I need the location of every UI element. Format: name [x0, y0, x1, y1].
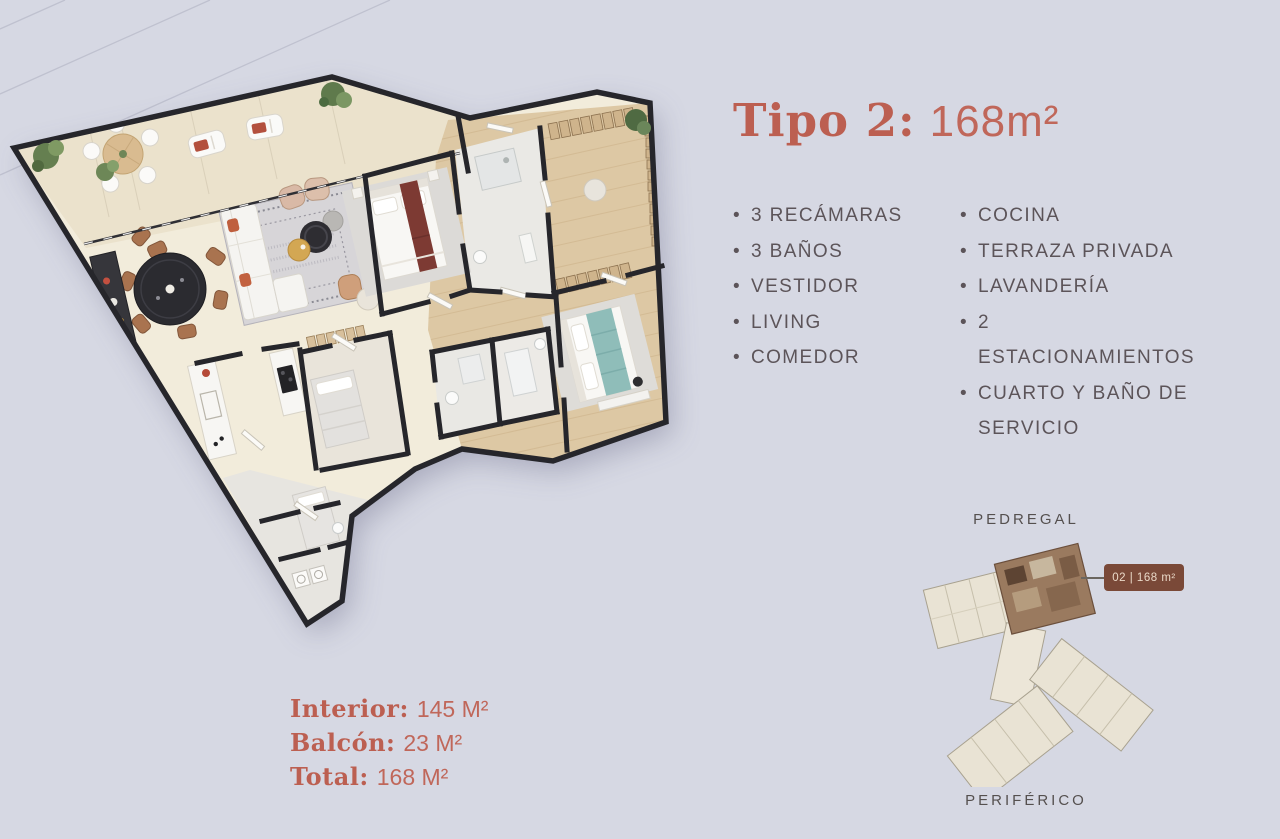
- bullet-icon: •: [960, 376, 978, 447]
- stat-total: Total:168 M²: [290, 762, 488, 796]
- feature-item: •LAVANDERÍA: [960, 269, 1212, 305]
- feature-text: 3 BAÑOS: [751, 234, 948, 270]
- feature-list-right: •COCINA •TERRAZA PRIVADA •LAVANDERÍA •2 …: [960, 198, 1212, 447]
- feature-item: •3 BAÑOS: [733, 234, 948, 270]
- feature-text: CUARTO Y BAÑO DE SERVICIO: [978, 376, 1212, 447]
- feature-text: LAVANDERÍA: [978, 269, 1212, 305]
- stat-interior: Interior:145 M²: [290, 694, 488, 728]
- stat-value: 168 M²: [377, 764, 449, 790]
- plan-type-label: Tipo 2:: [733, 94, 916, 147]
- plan-title: Tipo 2: 168m²: [733, 94, 1059, 147]
- pot: [202, 369, 210, 377]
- bullet-icon: •: [733, 234, 751, 270]
- highlighted-unit: [994, 543, 1095, 634]
- bullet-icon: •: [960, 269, 978, 305]
- cup: [301, 245, 306, 250]
- stat-value: 145 M²: [417, 696, 489, 722]
- feature-list-left: •3 RECÁMARAS •3 BAÑOS •VESTIDOR •LIVING …: [733, 198, 948, 376]
- feature-item: •TERRAZA PRIVADA: [960, 234, 1212, 270]
- feature-text: TERRAZA PRIVADA: [978, 234, 1212, 270]
- bullet-icon: •: [960, 234, 978, 270]
- bullet-icon: •: [733, 340, 751, 376]
- feature-item: •2 ESTACIONAMIENTOS: [960, 305, 1212, 376]
- bullet-icon: •: [960, 198, 978, 234]
- minimap-bottom-street-label: PERIFÉRICO: [890, 792, 1162, 809]
- stat-label: Balcón:: [290, 728, 395, 757]
- bullet-icon: •: [733, 305, 751, 341]
- side-table-gold: [288, 239, 310, 261]
- feature-text: COMEDOR: [751, 340, 948, 376]
- feature-item: •COCINA: [960, 198, 1212, 234]
- bathroom-2: [432, 340, 500, 437]
- feature-item: •COMEDOR: [733, 340, 948, 376]
- bullet-icon: •: [733, 198, 751, 234]
- area-stats: Interior:145 M² Balcón:23 M² Total:168 M…: [290, 694, 488, 796]
- feature-text: 2 ESTACIONAMIENTOS: [978, 305, 1212, 376]
- badge-leader-line: [1081, 577, 1104, 579]
- feature-item: •LIVING: [733, 305, 948, 341]
- bullet-icon: •: [733, 269, 751, 305]
- service-wc: [333, 523, 344, 534]
- plan-area-label: 168m²: [930, 97, 1060, 147]
- stat-label: Interior:: [290, 694, 409, 723]
- stat-label: Total:: [290, 762, 369, 791]
- minimap-top-street-label: PEDREGAL: [890, 511, 1162, 528]
- feature-text: COCINA: [978, 198, 1212, 234]
- feature-text: LIVING: [751, 305, 948, 341]
- unit-badge: 02 | 168 m²: [1104, 564, 1184, 591]
- feature-item: •CUARTO Y BAÑO DE SERVICIO: [960, 376, 1212, 447]
- feature-text: 3 RECÁMARAS: [751, 198, 948, 234]
- stat-value: 23 M²: [403, 730, 462, 756]
- stat-balcony: Balcón:23 M²: [290, 728, 488, 762]
- feature-item: •VESTIDOR: [733, 269, 948, 305]
- feature-text: VESTIDOR: [751, 269, 948, 305]
- brochure-page: { "title": { "name": "Tipo 2:", "area": …: [0, 0, 1280, 839]
- bullet-icon: •: [960, 305, 978, 376]
- feature-item: •3 RECÁMARAS: [733, 198, 948, 234]
